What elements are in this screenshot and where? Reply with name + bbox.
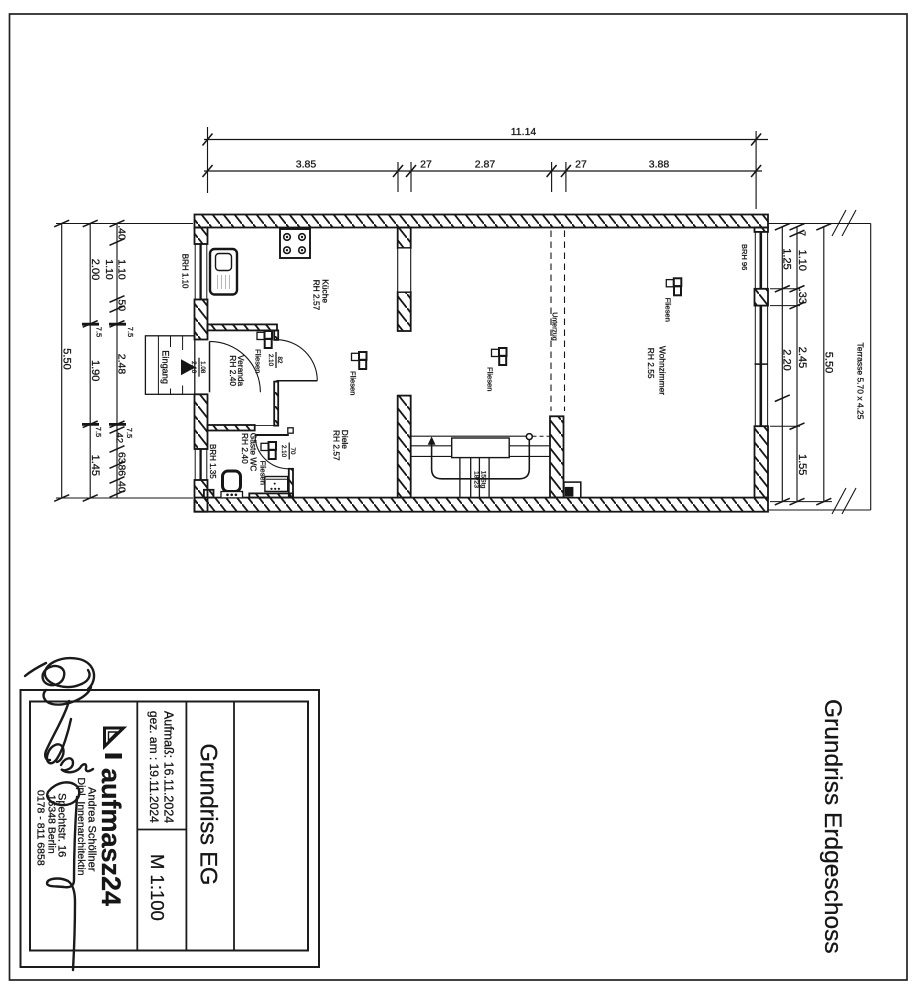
svg-text:BRH 1.10: BRH 1.10 xyxy=(181,254,190,289)
svg-text:.40: .40 xyxy=(116,478,128,493)
svg-text:RH 2.40: RH 2.40 xyxy=(228,355,238,386)
svg-text:Aufmaß: 16.11.2024: Aufmaß: 16.11.2024 xyxy=(162,711,176,823)
svg-text:2.10: 2.10 xyxy=(280,445,287,458)
svg-text:5.50: 5.50 xyxy=(61,348,73,369)
svg-text:Wohnzimmer: Wohnzimmer xyxy=(657,346,667,395)
svg-text:18/23: 18/23 xyxy=(473,471,480,488)
svg-text:27: 27 xyxy=(575,159,587,171)
svg-text:Fliesen: Fliesen xyxy=(259,461,268,485)
svg-text:RH 2.57: RH 2.57 xyxy=(311,280,321,311)
svg-text:.40: .40 xyxy=(116,225,128,240)
svg-text:2.20: 2.20 xyxy=(781,349,793,370)
svg-text:2.10: 2.10 xyxy=(267,354,274,367)
svg-text:Fliesen: Fliesen xyxy=(663,298,672,322)
svg-text:7.5: 7.5 xyxy=(94,427,103,437)
svg-text:1.55: 1.55 xyxy=(796,454,808,475)
svg-text:2.48: 2.48 xyxy=(116,354,128,375)
svg-text:1.90: 1.90 xyxy=(89,360,101,381)
svg-text:Fliesen: Fliesen xyxy=(254,349,263,373)
svg-text:7: 7 xyxy=(797,231,807,236)
svg-text:RH 2.55: RH 2.55 xyxy=(646,348,656,379)
svg-text:Dipl. Innenarchitektin: Dipl. Innenarchitektin xyxy=(75,778,87,876)
svg-text:2.00: 2.00 xyxy=(89,259,101,280)
svg-text:82: 82 xyxy=(276,357,283,364)
svg-text:Grundriss Erdgeschoss: Grundriss Erdgeschoss xyxy=(819,699,846,954)
svg-text:.42: .42 xyxy=(114,430,125,443)
svg-text:3.85: 3.85 xyxy=(296,159,317,171)
svg-text:86: 86 xyxy=(116,464,128,476)
svg-text:5.50: 5.50 xyxy=(822,352,834,373)
svg-text:27: 27 xyxy=(420,159,432,171)
svg-text:15Stg: 15Stg xyxy=(480,471,487,489)
svg-text:Eingang: Eingang xyxy=(161,350,171,384)
svg-text:Unterzug: Unterzug xyxy=(551,312,558,341)
svg-text:7.5: 7.5 xyxy=(126,327,135,337)
svg-text:0178 - 811 6858: 0178 - 811 6858 xyxy=(35,790,47,866)
svg-text:RH 2.57: RH 2.57 xyxy=(331,430,341,461)
svg-text:2.10: 2.10 xyxy=(190,361,197,374)
svg-text:Grundriss EG: Grundriss EG xyxy=(195,743,222,885)
svg-text:1.10: 1.10 xyxy=(796,250,808,271)
svg-text:63: 63 xyxy=(116,452,128,464)
svg-text:7.5: 7.5 xyxy=(95,327,104,337)
svg-text:BRH 1.35: BRH 1.35 xyxy=(208,444,217,479)
svg-text:7.5: 7.5 xyxy=(125,428,134,438)
svg-text:1.10: 1.10 xyxy=(103,259,115,280)
svg-text:11.14: 11.14 xyxy=(511,126,537,138)
svg-text:.33: .33 xyxy=(796,289,808,304)
svg-text:aufmasz24: aufmasz24 xyxy=(96,768,126,906)
svg-text:2.87: 2.87 xyxy=(475,159,496,171)
svg-text:2.45: 2.45 xyxy=(796,347,808,368)
svg-text:Fliesen: Fliesen xyxy=(349,371,358,395)
svg-text:1.08: 1.08 xyxy=(199,361,206,374)
svg-text:BRH 96: BRH 96 xyxy=(740,244,749,270)
svg-text:M 1:100: M 1:100 xyxy=(147,854,168,921)
svg-text:Fliesen: Fliesen xyxy=(486,367,495,391)
svg-text:3.88: 3.88 xyxy=(649,159,670,171)
svg-text:Terrasse 5.70 x 4.25: Terrasse 5.70 x 4.25 xyxy=(856,342,866,419)
svg-text:1.10: 1.10 xyxy=(116,259,128,280)
svg-text:70: 70 xyxy=(289,448,296,455)
svg-text:gez. am : 19.11.2024: gez. am : 19.11.2024 xyxy=(147,711,161,823)
svg-text:1.45: 1.45 xyxy=(89,455,101,476)
svg-text:RH 2.40: RH 2.40 xyxy=(240,433,250,464)
svg-text:1.25: 1.25 xyxy=(781,248,793,269)
svg-text:.50: .50 xyxy=(116,296,128,311)
